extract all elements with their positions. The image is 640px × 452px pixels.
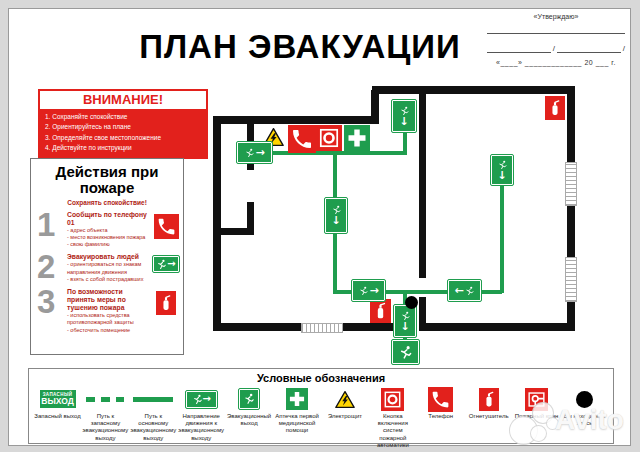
step-detail: - обесточить помещение (67, 327, 151, 334)
approval-date-line: «____» _____________ 20 ___ г. (487, 59, 625, 66)
window (565, 257, 577, 302)
fire-extinguisher-icon (545, 96, 565, 120)
down-arrow-icon: ↓ (331, 215, 340, 226)
fire-action-step-2: 2 Эвакуировать людей - ориентироваться п… (31, 250, 183, 285)
right-arrow-icon: → (167, 259, 175, 269)
right-arrow-icon: → (255, 147, 264, 158)
exit-sign-icon: → (153, 256, 179, 272)
step-number: 1 (37, 211, 65, 239)
page-title: ПЛАН ЭВАКУАЦИИ (128, 28, 472, 66)
window (565, 162, 577, 206)
legend-item: Электрощит (321, 387, 368, 449)
exit-sign-down: ↓ (394, 305, 416, 337)
exit-sign-down: ↓ (491, 155, 513, 185)
left-arrow-icon: ← (454, 285, 463, 296)
step-detail: - использовать средства противопожарной … (67, 312, 151, 326)
running-man-icon (398, 345, 413, 360)
solid-route-icon (133, 397, 173, 402)
signature-name-row: / / (487, 43, 625, 53)
attention-item: 1. Сохраняйте спокойствие (45, 112, 201, 122)
fire-action-step-1: 1 Сообщить по телефону 01 - адрес объект… (31, 208, 183, 251)
slash: / (623, 44, 625, 53)
running-man-icon (156, 259, 167, 270)
fire-action-step-3: 3 По возможности принять меры по тушению… (31, 285, 183, 336)
down-arrow-icon: ↓ (399, 116, 408, 127)
wall (221, 228, 254, 235)
fire-alarm-button-icon (381, 388, 404, 411)
down-arrow-icon: ↓ (497, 170, 506, 181)
step-detail: - адрес объекта (67, 227, 151, 234)
direction-sign-icon: → (186, 391, 217, 408)
evacuation-exit-sign (392, 340, 419, 364)
legend-item: Огнетушитель (465, 387, 512, 449)
signature-line (487, 27, 625, 34)
you-are-here-icon (405, 296, 418, 309)
exit-sign-left: ← (448, 280, 481, 301)
wall (419, 90, 426, 278)
legend-item: Путь к запасному эвакуационному выходу (82, 387, 129, 449)
window (301, 323, 343, 333)
wall (213, 116, 379, 124)
step-title: Эвакуировать людей (67, 253, 151, 261)
signature-line (487, 43, 551, 53)
fire-hose-icon (525, 388, 548, 411)
legend-item: Телефон (417, 387, 464, 449)
legend-item: Эвакуационный выход (226, 387, 273, 449)
legend-item: Вы находитесь здесь (561, 387, 608, 449)
phone-icon (288, 125, 316, 153)
running-man-icon (400, 311, 411, 321)
running-man-icon (243, 393, 255, 405)
fire-actions-box: Действия при пожаре Сохранять спокойстви… (30, 158, 184, 355)
attention-list: 1. Сохраняйте спокойствие 2. Ориентируйт… (40, 109, 206, 157)
running-man-icon (464, 286, 475, 296)
first-aid-icon (344, 125, 370, 151)
phone-icon (154, 214, 179, 239)
dashed-route-icon (86, 397, 124, 402)
running-man-icon (192, 394, 203, 405)
attention-item: 2. Ориентируйтесь на плане (45, 122, 201, 132)
right-arrow-icon: → (203, 394, 211, 404)
right-arrow-icon: → (369, 285, 378, 296)
evacuation-exit-icon (239, 389, 259, 409)
exit-sign-down: ↓ (325, 198, 347, 233)
running-man-icon (358, 286, 369, 296)
down-arrow-icon: ↓ (400, 321, 409, 332)
legend-item: Кнопка включения систем пожарной автомат… (369, 387, 416, 449)
legend-item: Путь к основному эвакуационному выходу (130, 387, 177, 449)
step-detail: - ориентироваться по знакам направления … (67, 261, 151, 275)
electrical-panel-icon (334, 390, 356, 409)
fire-extinguisher-icon (479, 388, 499, 411)
emergency-exit-sign-icon: ЗАПАСНЫЙ ВЫХОД (39, 389, 77, 409)
fire-extinguisher-icon (370, 299, 391, 323)
legend-item: → Направление движения к эвакуационному … (178, 387, 225, 449)
legend-item: ЗАПАСНЫЙ ВЫХОД Запасный выход (34, 387, 81, 449)
attention-box: ВНИМАНИЕ! 1. Сохраняйте спокойствие 2. О… (38, 89, 208, 159)
evacuation-plan-poster: ПЛАН ЭВАКУАЦИИ «Утверждаю» / / «____» __… (0, 0, 640, 452)
step-detail: - взять с собой пострадавших (67, 276, 151, 283)
approval-block: «Утверждаю» / / «____» _____________ 20 … (487, 13, 625, 66)
step-detail: - место возникновения пожара (67, 234, 151, 241)
attention-item: 3. Определяйте свое местоположение (45, 133, 201, 143)
legend-title: Условные обозначения (29, 372, 613, 384)
fire-actions-subtitle: Сохранять спокойствие! (31, 199, 183, 206)
fire-alarm-button-icon (316, 125, 342, 151)
you-are-here-icon (576, 391, 593, 408)
wall (213, 116, 221, 331)
first-aid-icon (286, 388, 308, 410)
legend-box: Условные обозначения ЗАПАСНЫЙ ВЫХОД Запа… (28, 368, 614, 444)
step-title: Сообщить по телефону 01 (67, 211, 151, 227)
wall (372, 86, 575, 94)
approval-label: «Утверждаю» (487, 13, 625, 20)
evacuation-route (500, 180, 504, 293)
legend-item: Аптечка первой медицинской помощи (274, 387, 321, 449)
running-man-icon (244, 148, 255, 158)
exit-sign-right: → (352, 280, 385, 301)
step-number: 2 (37, 253, 65, 281)
attention-item: 4. Действуйте по инструкции (45, 143, 201, 153)
phone-icon (428, 387, 453, 412)
running-man-icon (497, 160, 508, 170)
wall (419, 297, 426, 327)
step-title: По возможности принять меры по тушению п… (67, 288, 151, 312)
name-line (557, 43, 621, 53)
exit-sign-right: → (237, 142, 272, 163)
exit-sign-down: ↓ (392, 100, 416, 132)
fire-actions-title: Действия при пожаре (31, 159, 183, 196)
step-detail: - свою фамилию (67, 241, 151, 248)
step-number: 3 (37, 288, 65, 316)
running-man-icon (399, 106, 410, 116)
legend-item: Пожарный кран (513, 387, 560, 449)
fire-extinguisher-icon (156, 291, 176, 315)
slash: / (553, 44, 555, 53)
wall (371, 90, 379, 120)
attention-title: ВНИМАНИЕ! (40, 91, 206, 109)
